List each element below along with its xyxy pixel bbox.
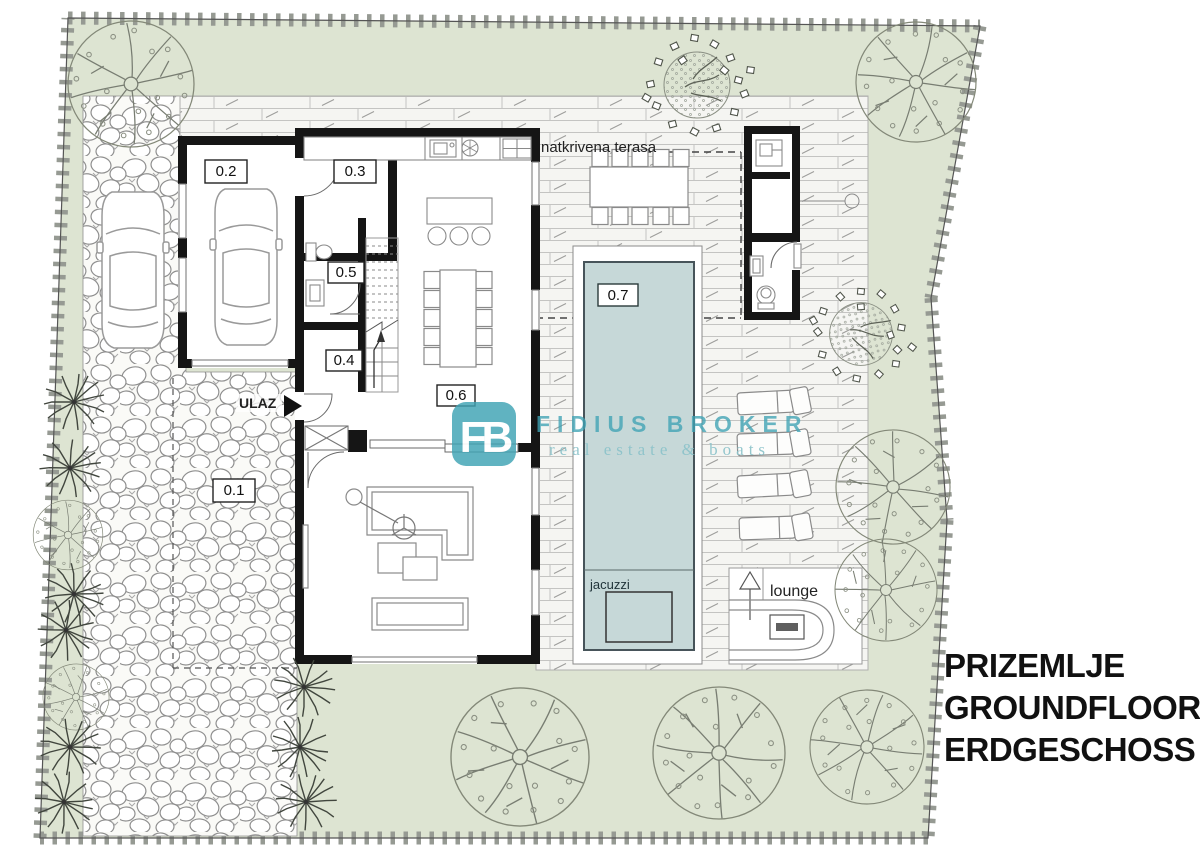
jacuzzi-label: jacuzzi xyxy=(589,577,630,592)
bar-stools xyxy=(428,227,490,245)
floor-plan-page: 0.1 0.2 0.3 0.4 0.5 0.6 0.7 natkrivena t… xyxy=(0,0,1200,861)
broker-logo-text: FB xyxy=(460,413,512,462)
hob-icon xyxy=(503,139,531,158)
washbasin-icon xyxy=(306,280,324,306)
room-label-0-4: 0.4 xyxy=(326,350,362,371)
svg-text:0.4: 0.4 xyxy=(334,352,355,369)
jacuzzi-tub xyxy=(606,592,672,642)
floor-title-hr: PRIZEMLJE xyxy=(944,647,1125,684)
broker-tagline: real estate & boats xyxy=(549,440,770,459)
svg-text:ULAZ: ULAZ xyxy=(239,395,277,411)
outdoor-wc-icon xyxy=(757,286,775,309)
room-label-0-7: 0.7 xyxy=(598,284,638,306)
broker-name: FIDIUS BROKER xyxy=(536,411,808,437)
kitchen-counter xyxy=(304,137,531,160)
room-label-0-1: 0.1 xyxy=(213,479,255,502)
wardrobe xyxy=(305,426,348,450)
svg-text:0.1: 0.1 xyxy=(224,482,245,499)
outdoor-basin-icon xyxy=(750,256,763,276)
svg-text:0.5: 0.5 xyxy=(336,264,357,281)
outbuilding-door xyxy=(794,244,801,268)
svg-text:0.7: 0.7 xyxy=(608,287,629,304)
shower-icon xyxy=(756,140,782,166)
watermark: FB FIDIUS BROKER real estate & boats xyxy=(452,402,808,466)
tv-icon xyxy=(303,525,308,588)
floor-title-block: PRIZEMLJE GROUNDFLOOR ERDGESCHOSS xyxy=(944,647,1200,768)
svg-text:0.6: 0.6 xyxy=(446,387,467,404)
floor-title-de: ERDGESCHOSS xyxy=(944,731,1195,768)
car-icon xyxy=(97,192,169,348)
sink-icon xyxy=(430,140,456,157)
room-label-0-3: 0.3 xyxy=(334,160,376,183)
floor-title-en: GROUNDFLOOR xyxy=(944,689,1200,726)
dining-area xyxy=(424,270,492,367)
cooktop-icon xyxy=(462,140,478,156)
floor-plan-drawing: 0.1 0.2 0.3 0.4 0.5 0.6 0.7 natkrivena t… xyxy=(0,0,1200,861)
room-label-0-2: 0.2 xyxy=(205,160,247,183)
lounge-table-tray xyxy=(776,623,798,631)
kitchen-island xyxy=(427,198,492,224)
svg-text:0.3: 0.3 xyxy=(345,163,366,180)
lounge-label: lounge xyxy=(770,583,818,600)
svg-text:0.2: 0.2 xyxy=(216,163,237,180)
covered-terrace-label: natkrivena terasa xyxy=(541,139,657,156)
room-label-0-5: 0.5 xyxy=(328,262,364,283)
terrace-dining-table xyxy=(590,167,688,207)
side-table xyxy=(403,557,437,580)
outdoor-dining xyxy=(590,150,689,225)
car-icon xyxy=(210,189,282,345)
dining-table xyxy=(440,270,476,367)
